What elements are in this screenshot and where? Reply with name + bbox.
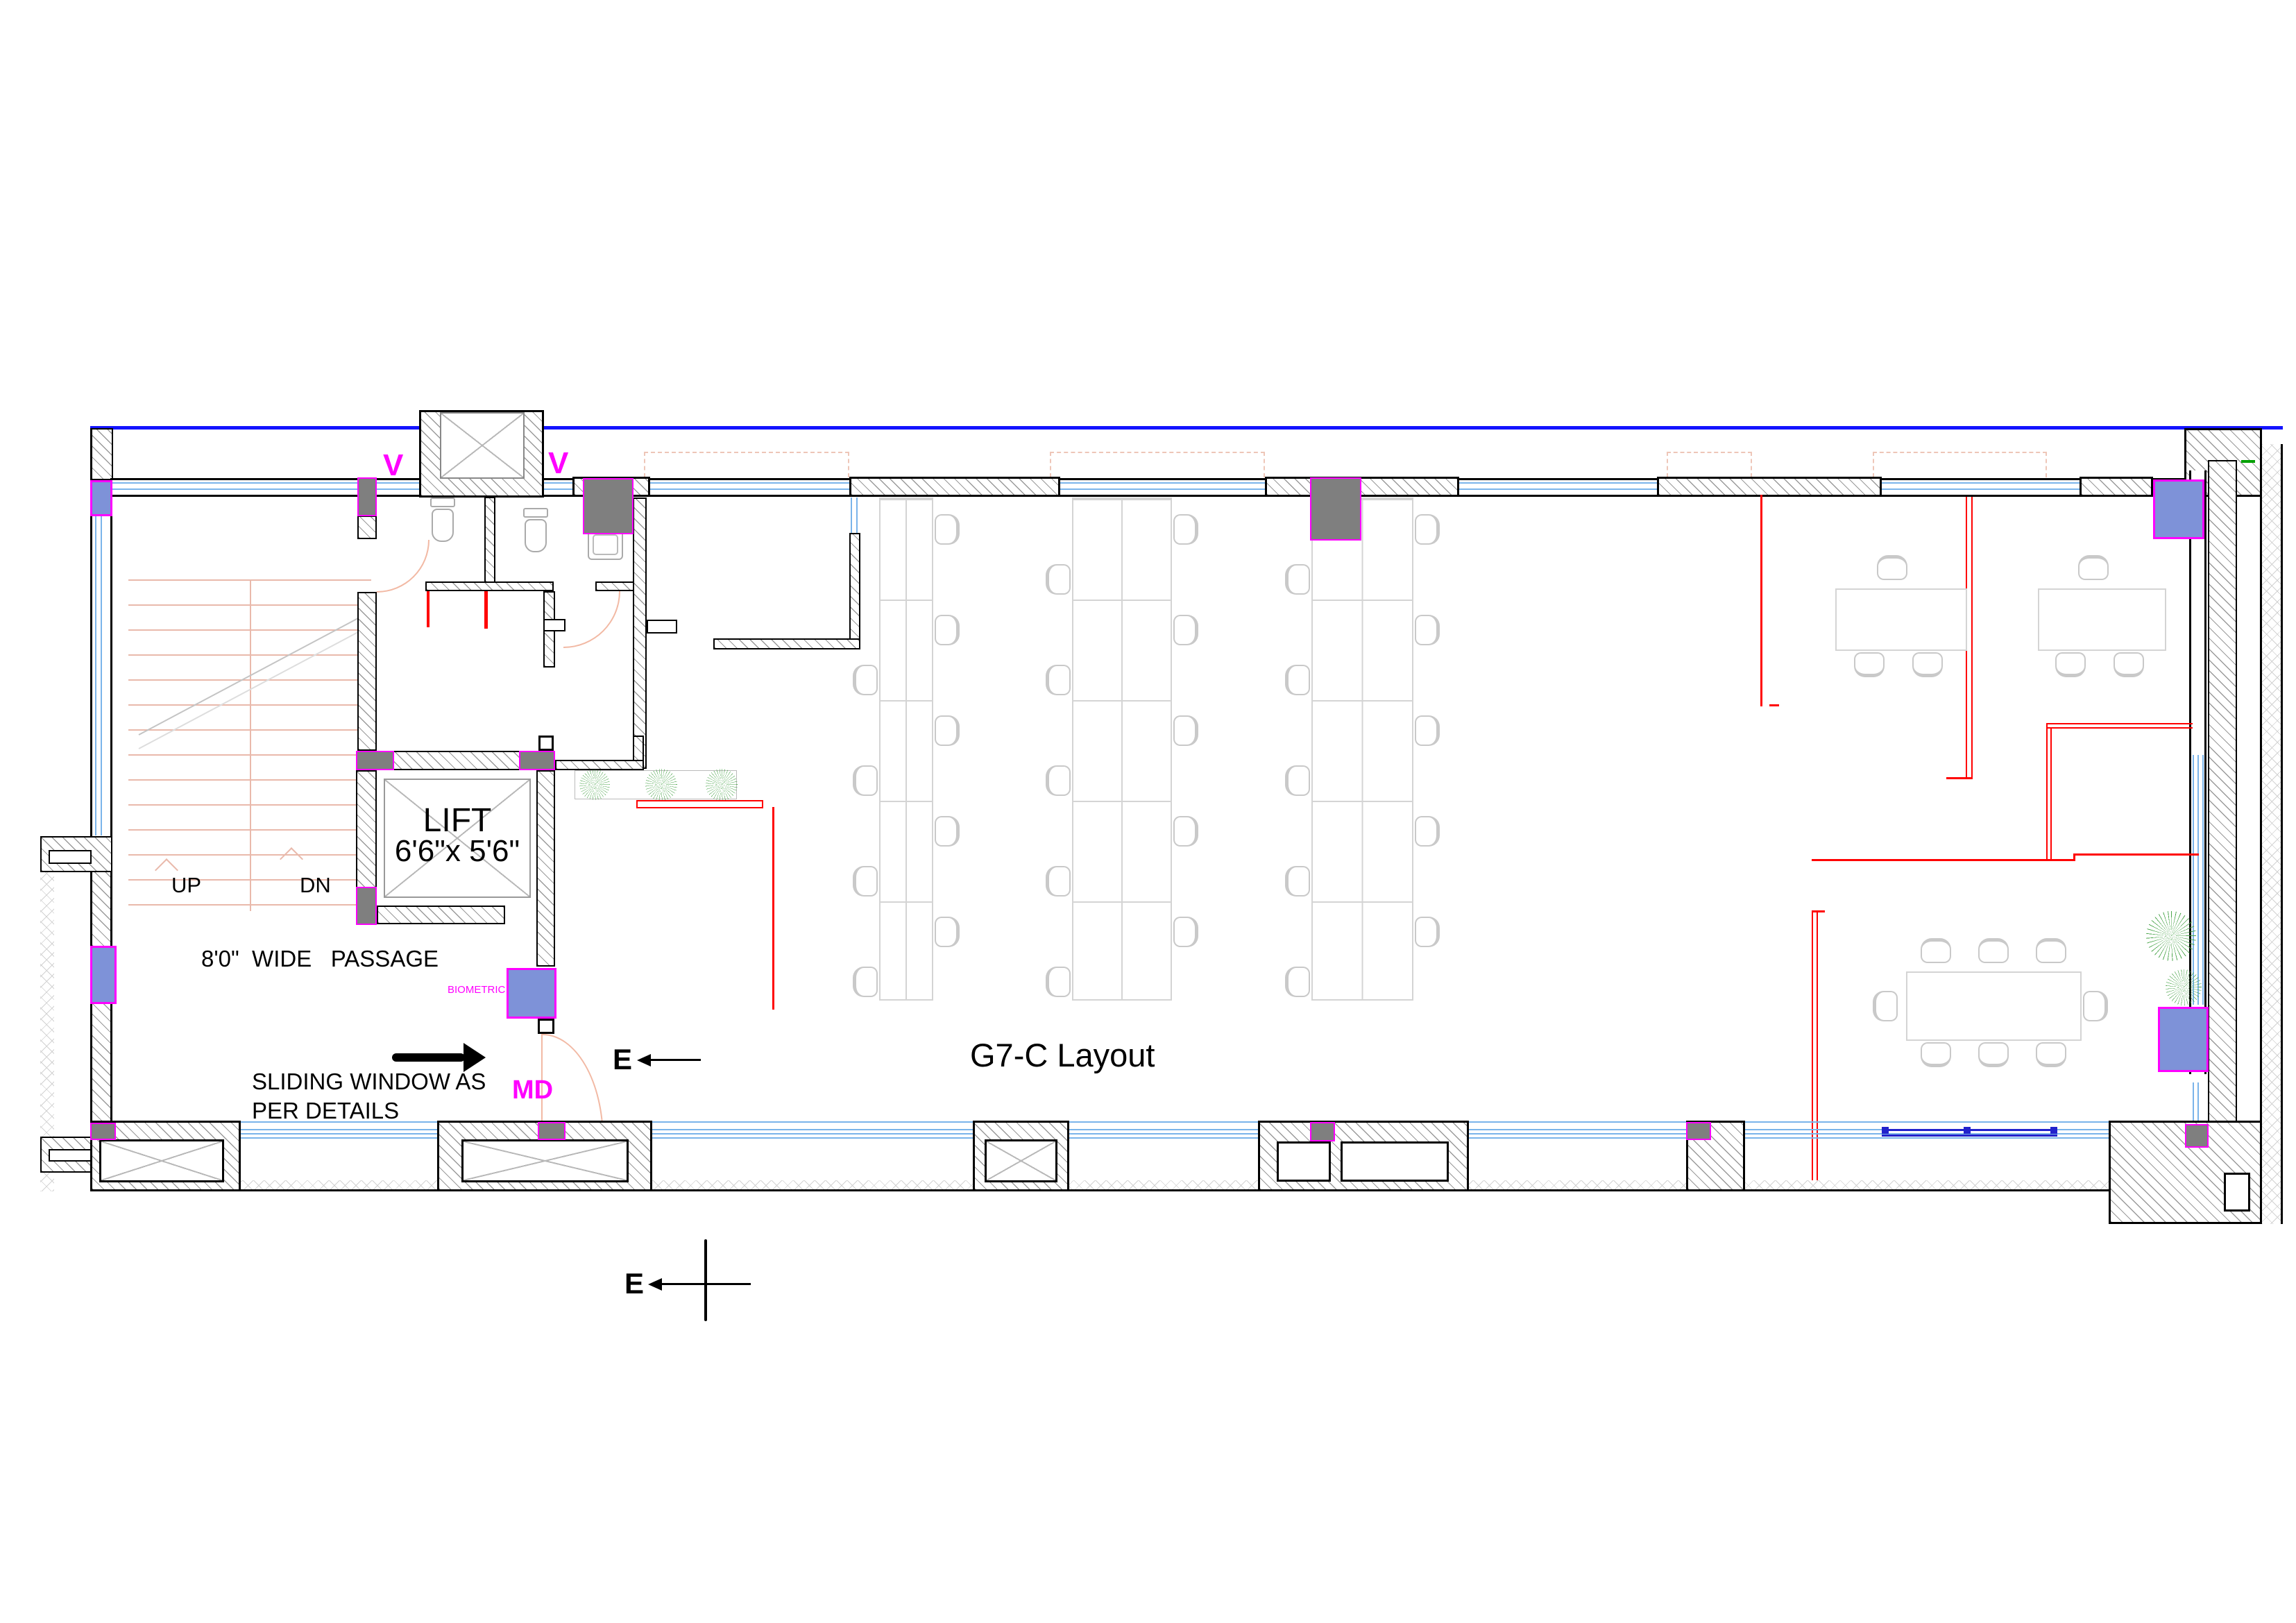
page-title: G7-C Layout [970, 1038, 1155, 1072]
chair [2083, 991, 2108, 1021]
red-partition [1817, 910, 1818, 1191]
column [583, 478, 633, 534]
red-partition [1760, 495, 1762, 706]
chair [1978, 938, 2009, 963]
chair [1173, 917, 1198, 947]
section-cut-line [704, 1239, 707, 1321]
chair [2078, 555, 2109, 580]
left-glazing [101, 516, 102, 835]
door-swing [377, 540, 430, 593]
vent-label: V [383, 450, 403, 482]
column-highlighted [2158, 1007, 2209, 1072]
bottom-band-outer-face [90, 1189, 2123, 1191]
dark-blue-window-stop [2050, 1127, 2057, 1134]
toilet-wall-divider [484, 497, 495, 583]
section-arrow-line [661, 1283, 751, 1285]
chair [1046, 765, 1071, 796]
sink-basin [593, 534, 618, 555]
partition-wall-horizontal [713, 638, 860, 649]
chair [1046, 967, 1071, 997]
chair [853, 665, 878, 695]
door-stub [538, 1019, 554, 1034]
wall-left-projection-notch [49, 1149, 92, 1162]
wall-left-projection-notch [49, 850, 92, 864]
chair [1415, 715, 1440, 746]
door-swing [563, 591, 620, 648]
column-highlighted [2153, 479, 2204, 539]
tree [2166, 969, 2202, 1005]
dashed-projection [1667, 452, 1752, 477]
wc-tank [523, 508, 548, 518]
chair [1854, 652, 1885, 677]
section-arrow-head [648, 1278, 662, 1291]
chair [935, 917, 960, 947]
wall-right-outer-leaf [2208, 460, 2237, 1223]
partition-wall-vertical [849, 533, 860, 642]
chair [2055, 652, 2086, 677]
lift-wall-right [536, 770, 555, 967]
chair [1173, 816, 1198, 847]
chair [2036, 1042, 2066, 1067]
meeting-table [1906, 971, 2082, 1041]
red-partition [1971, 497, 1973, 779]
compound-strip-right [2260, 444, 2283, 1224]
stair-up-label: UP [171, 874, 201, 897]
toilet-wall-right [633, 498, 647, 769]
lift-size-label: 6'6"x 5'6" [366, 835, 548, 867]
chair [935, 514, 960, 545]
chair [853, 866, 878, 897]
green-marker [2241, 460, 2255, 463]
chair [1046, 866, 1071, 897]
vent-label: V [548, 448, 568, 479]
dark-blue-window-stop [1964, 1127, 1971, 1134]
toilet-wall-horizontal [595, 581, 636, 591]
column-biometric [507, 968, 556, 1019]
right-glazing [2197, 755, 2199, 1005]
column-highlighted [90, 946, 117, 1004]
partition-glazing [851, 498, 852, 533]
passage-label: 8'0" WIDE PASSAGE [201, 947, 439, 971]
pier-notch [1341, 1141, 1449, 1182]
right-glazing [2202, 755, 2204, 1005]
column [1310, 1122, 1335, 1141]
wall-pier [1657, 477, 1882, 497]
section-arrow-head [637, 1054, 651, 1067]
chair [1877, 555, 1907, 580]
section-arrow-line [649, 1059, 701, 1061]
red-partition [772, 807, 774, 1010]
red-partition [1769, 704, 1779, 706]
chair [1285, 665, 1310, 695]
tree [2146, 911, 2196, 961]
pier-planter [461, 1139, 629, 1182]
red-partition [1812, 910, 1825, 912]
section-label: E [613, 1044, 632, 1075]
toilet-wall-left [357, 516, 377, 539]
passage-wall [555, 760, 644, 770]
chair [853, 967, 878, 997]
chair [1046, 665, 1071, 695]
chair [2114, 652, 2144, 677]
bottom-band-inner-face [112, 1121, 2109, 1123]
wall-right-channel-line [2204, 470, 2206, 1074]
desk-bank-3 [1311, 498, 1413, 1001]
red-partition [2073, 853, 2199, 856]
toilet-wall-left [357, 592, 377, 751]
direction-arrow [392, 1053, 465, 1062]
wall-top-left-corner [90, 428, 113, 480]
red-partition [1946, 777, 1973, 779]
red-partition [2046, 723, 2193, 724]
duct-shaft-void [440, 412, 525, 479]
direction-arrow-head [464, 1043, 486, 1072]
red-partition [1812, 910, 1813, 1191]
wall-pier [1265, 477, 1459, 497]
chair [1415, 917, 1440, 947]
tree [706, 769, 738, 801]
pier-planter [985, 1139, 1057, 1182]
pier-planter [99, 1139, 224, 1182]
chair [853, 765, 878, 796]
section-label: E [624, 1268, 644, 1299]
dashed-projection [644, 452, 849, 477]
wall-left-fill [92, 1004, 110, 1123]
column [1310, 477, 1361, 541]
biometric-label: BIOMETRIC [448, 985, 505, 996]
chair [935, 816, 960, 847]
cabin-desk [1835, 588, 1967, 651]
wall-pier [849, 477, 1060, 497]
tree [645, 769, 677, 801]
lift-wall-bottom [377, 906, 505, 924]
wall-left-inner-face [110, 478, 112, 1191]
column [90, 1123, 116, 1140]
red-partition-stub [427, 591, 430, 627]
partition-glazing [856, 498, 858, 533]
column [2185, 1124, 2209, 1148]
stair-center-divider [250, 579, 251, 911]
chair [935, 715, 960, 746]
tree [579, 770, 610, 800]
column-highlighted [90, 480, 112, 516]
chair [1173, 615, 1198, 645]
column [357, 477, 377, 516]
toilet-wall-stub [647, 620, 677, 634]
toilet-wall-horizontal [425, 581, 554, 591]
chair [1173, 514, 1198, 545]
dashed-projection [1050, 452, 1265, 477]
column [538, 1122, 566, 1140]
chair [1912, 652, 1943, 677]
floor-plan: UP DN LIFT 6'6"x 5'6" [0, 0, 2296, 1623]
md-label: MD [512, 1077, 553, 1105]
chair [2036, 938, 2066, 963]
chair [1415, 615, 1440, 645]
sliding-window-label-2: PER DETAILS [252, 1099, 399, 1123]
sliding-window-label-1: SLIDING WINDOW AS [252, 1070, 486, 1094]
wc-bowl [525, 519, 547, 552]
column [519, 751, 555, 770]
red-partition [2046, 727, 2193, 729]
chair [1978, 1042, 2009, 1067]
chair [1415, 816, 1440, 847]
dark-blue-window [1882, 1135, 2057, 1137]
chair [1415, 514, 1440, 545]
red-partition [2050, 727, 2052, 859]
wall-stub [538, 736, 554, 751]
chair [935, 615, 960, 645]
dark-blue-window-stop [1882, 1127, 1889, 1134]
pier-notch [2224, 1173, 2250, 1212]
desk-bank-2 [1072, 498, 1172, 1001]
chair [1285, 765, 1310, 796]
toilet-wall-stub [543, 619, 566, 631]
chair [1921, 938, 1951, 963]
dashed-projection [1873, 452, 2047, 477]
chair [1873, 991, 1898, 1021]
chair [1046, 564, 1071, 595]
chair [1285, 564, 1310, 595]
column [1686, 1122, 1711, 1140]
column [356, 751, 394, 770]
right-glazing [2193, 755, 2194, 1005]
red-partition [2046, 723, 2048, 859]
cabin-desk [2038, 588, 2166, 651]
lift-label: LIFT [384, 804, 531, 838]
wc-tank [430, 498, 455, 507]
red-partition [1812, 859, 2075, 861]
desk-bank-1 [879, 498, 933, 1001]
chair [1173, 715, 1198, 746]
pier-notch [1277, 1141, 1331, 1182]
left-glazing [95, 516, 96, 835]
red-planter-outline [636, 800, 763, 808]
stair-dn-label: DN [300, 874, 331, 897]
chair [1285, 967, 1310, 997]
wc-bowl [432, 509, 454, 542]
chair [1285, 866, 1310, 897]
chair [1921, 1042, 1951, 1067]
column [356, 887, 377, 925]
red-partition-stub [484, 591, 488, 629]
wall-pier [2080, 477, 2153, 497]
